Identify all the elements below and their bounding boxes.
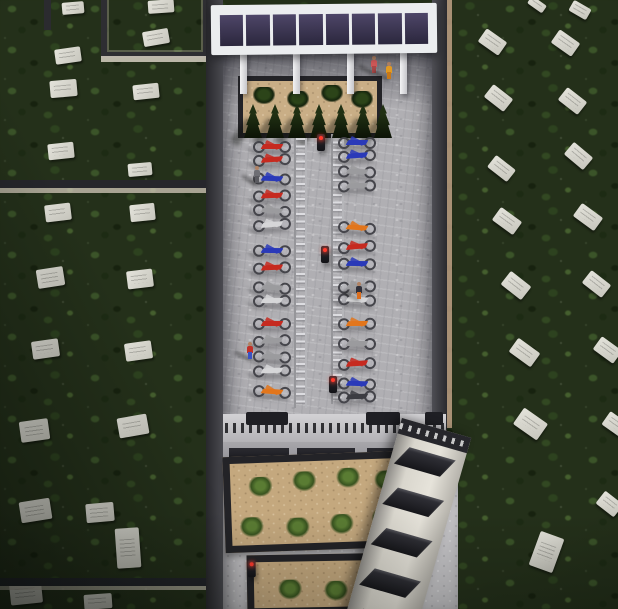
- plot-frame: [101, 0, 209, 58]
- building-window: [371, 528, 433, 558]
- shrub: [248, 476, 273, 497]
- balustrade-cap: [366, 412, 400, 425]
- memorial-plaque: [593, 336, 618, 364]
- canopy-glass-panel: [325, 14, 349, 45]
- bicycle-red: [337, 238, 376, 255]
- memorial-plaque: [527, 0, 547, 13]
- pedestrian-figure: [384, 62, 393, 80]
- courtyard-right-wall: [432, 0, 447, 432]
- bicycle-gray: [338, 164, 376, 179]
- bike-rack: [294, 138, 307, 408]
- canopy-glass-panel: [220, 15, 244, 46]
- memorial-plaque: [551, 29, 581, 56]
- memorial-plaque: [492, 207, 522, 235]
- plot-edge-highlight: [101, 56, 209, 62]
- memorial-plaque: [529, 531, 565, 573]
- memorial-plaque: [478, 28, 508, 55]
- shrub: [286, 517, 311, 538]
- scene-3d-render: [0, 0, 618, 609]
- memorial-plaque: [582, 270, 612, 298]
- signal-red-light: [250, 562, 254, 566]
- bicycle-red: [253, 188, 291, 203]
- memorial-plaque: [487, 155, 516, 182]
- balustrade-cap: [425, 412, 443, 425]
- bicycle-white: [252, 216, 291, 233]
- canopy-glass-panel: [299, 14, 323, 45]
- bicycle-red: [253, 260, 292, 276]
- signal-red-light: [331, 378, 335, 382]
- canopy-glass-panel: [273, 14, 297, 45]
- building-window: [394, 447, 456, 477]
- pedestrian-legs: [255, 176, 259, 183]
- bush: [321, 85, 343, 102]
- bicycle-gray: [338, 178, 376, 193]
- glass-canopy: [211, 3, 438, 55]
- courtyard-left-wall: [206, 0, 223, 609]
- shrub: [336, 467, 361, 488]
- memorial-plaque: [558, 87, 588, 115]
- memorial-plaque: [601, 411, 618, 437]
- canopy-glass-panel: [352, 13, 376, 44]
- signal-post: [329, 376, 337, 393]
- canopy-panel-row: [220, 13, 428, 46]
- bicycle-white: [253, 363, 291, 378]
- bicycle-orange: [253, 384, 292, 401]
- signal-post: [317, 134, 325, 151]
- bicycle-dark: [338, 389, 376, 404]
- plot-divider: [44, 0, 51, 30]
- bush: [351, 91, 373, 108]
- memorial-plaque: [513, 407, 548, 440]
- pedestrian-legs: [357, 292, 361, 299]
- plot-divider: [0, 180, 209, 188]
- canopy-column: [347, 50, 354, 94]
- bicycle-blue: [338, 257, 376, 272]
- bicycle-blue: [338, 148, 377, 165]
- canopy-column: [240, 50, 247, 94]
- pedestrian-legs: [387, 72, 391, 79]
- building-window: [359, 568, 421, 598]
- canopy-glass-panel: [378, 13, 402, 44]
- signal-post: [248, 560, 256, 577]
- plot-edge-highlight: [0, 586, 209, 590]
- shrub: [292, 471, 317, 492]
- bicycle-orange: [338, 317, 376, 332]
- shrub: [239, 517, 264, 538]
- canopy-glass-panel: [404, 13, 428, 44]
- signal-red-light: [319, 136, 323, 140]
- memorial-plaque: [573, 203, 603, 231]
- memorial-plaque: [509, 338, 541, 368]
- plot-edge-highlight: [0, 188, 209, 193]
- shrub: [324, 581, 348, 601]
- pedestrian-legs: [248, 352, 252, 359]
- bicycle-gray: [253, 333, 292, 350]
- bicycle-white: [253, 294, 291, 309]
- bicycle-gray: [338, 337, 376, 351]
- pedestrian-figure: [354, 282, 363, 300]
- canopy-glass-panel: [246, 15, 270, 46]
- balustrade-cap: [246, 412, 288, 425]
- bicycle-gray: [253, 349, 291, 364]
- memorial-plaque: [501, 271, 532, 300]
- pedestrian-figure: [252, 166, 261, 184]
- pedestrian-figure: [245, 342, 254, 360]
- canopy-column: [400, 50, 407, 94]
- shrub: [329, 514, 354, 535]
- bush: [253, 87, 275, 104]
- memorial-plaque: [484, 84, 514, 112]
- plot-divider: [0, 578, 209, 586]
- bicycle-orange: [338, 220, 377, 237]
- courtyard-wall-edge: [447, 0, 452, 428]
- memorial-plaque: [568, 0, 591, 20]
- signal-red-light: [323, 248, 327, 252]
- bicycle-red: [338, 356, 377, 373]
- bicycle-red: [253, 317, 291, 331]
- building-window: [382, 488, 444, 518]
- memorial-plaque: [564, 142, 593, 170]
- shrub: [278, 579, 302, 599]
- bicycle-blue: [253, 244, 291, 259]
- memorial-plaque: [596, 491, 618, 518]
- canopy-column: [293, 50, 300, 94]
- signal-post: [321, 246, 329, 263]
